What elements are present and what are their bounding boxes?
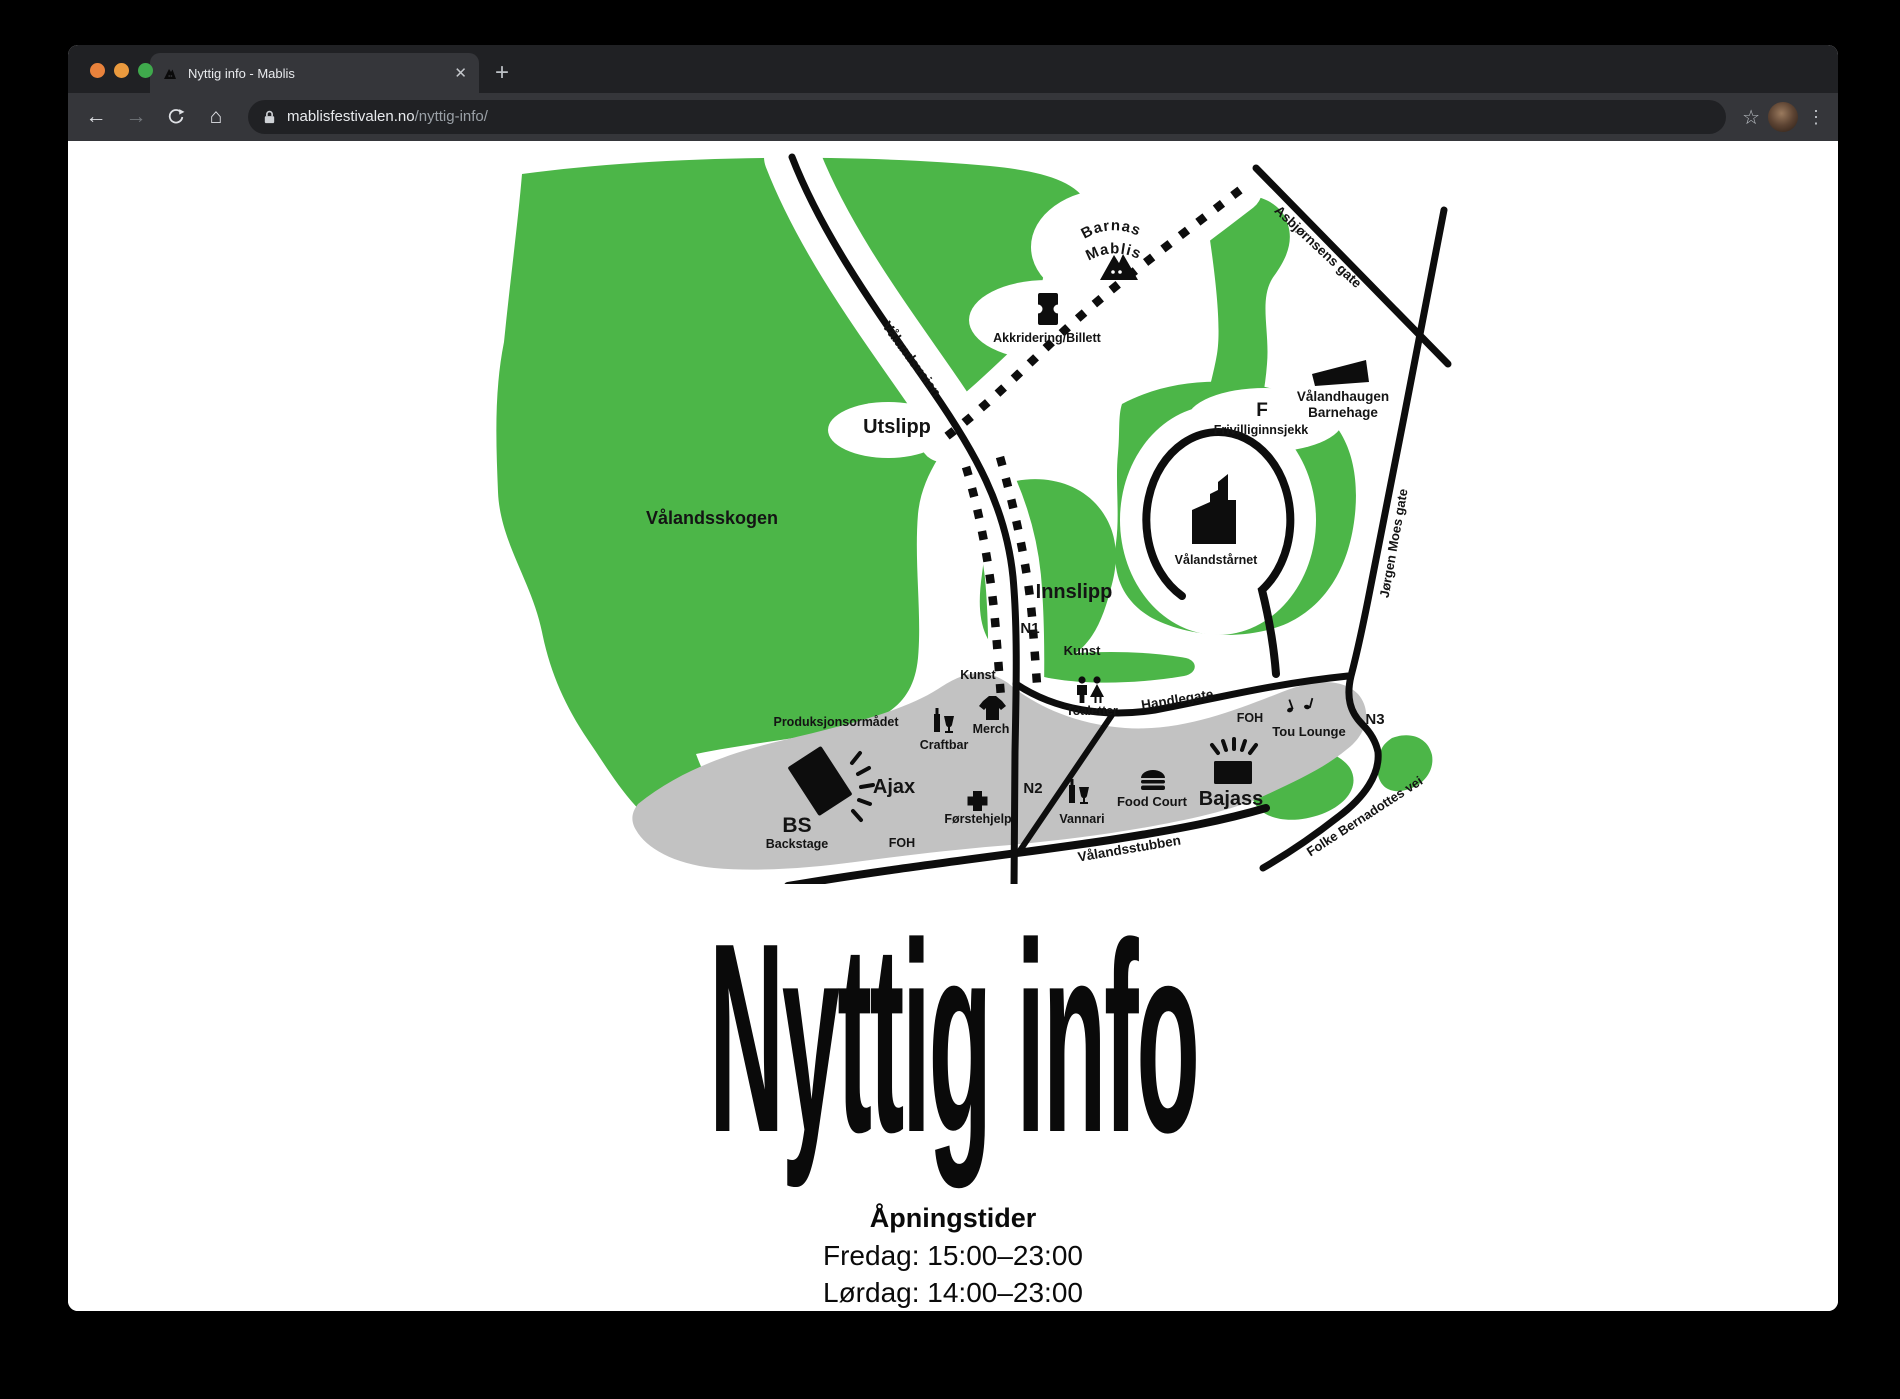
festival-map: Vålandsskogen Vålandsveien Utslipp Asbjø… (470, 152, 1460, 889)
label-n2: N2 (1023, 780, 1042, 797)
label-toaletter: Toaletter (1066, 704, 1118, 718)
label-kunst2: Kunst (960, 668, 996, 682)
label-forest: Vålandsskogen (646, 508, 778, 528)
new-tab-button[interactable]: + (495, 61, 509, 85)
bookmark-star-button[interactable]: ☆ (1742, 105, 1760, 130)
label-akkreditering: Akkridering/Billett (993, 331, 1101, 345)
label-backstage: Backstage (766, 837, 829, 851)
label-barnehage-line1: Vålandhaugen (1297, 389, 1389, 404)
barnehage-building-icon (1312, 360, 1369, 386)
label-frivillig: Frivilliginnsjekk (1214, 423, 1309, 437)
fullscreen-window-button[interactable] (138, 63, 153, 78)
url-path: /nyttig-info/ (415, 108, 488, 125)
url-text: mablisfestivalen.no/nyttig-info/ (287, 108, 488, 126)
label-craftbar: Craftbar (920, 738, 969, 752)
tab-close-icon[interactable]: ✕ (454, 64, 467, 82)
opening-hours-saturday: Lørdag: 14:00–23:00 (823, 1275, 1083, 1311)
browser-menu-button[interactable]: ⋮ (1806, 107, 1826, 128)
minimize-window-button[interactable] (114, 63, 129, 78)
label-bs: BS (782, 814, 811, 837)
home-button[interactable]: ⌂ (200, 101, 232, 133)
mablis-favicon-icon (162, 66, 178, 80)
page-title: Nyttig info (68, 923, 1838, 1167)
browser-tab[interactable]: Nyttig info - Mablis ✕ (150, 53, 479, 93)
url-domain: mablisfestivalen.no (287, 108, 415, 125)
label-n3: N3 (1365, 711, 1384, 728)
forward-button[interactable]: → (120, 101, 152, 133)
label-merch: Merch (973, 722, 1010, 736)
label-barnehage-line2: Barnehage (1308, 405, 1378, 420)
close-window-button[interactable] (90, 63, 105, 78)
burger-icon (1141, 770, 1165, 790)
label-kunst1: Kunst (1064, 643, 1102, 658)
label-innslipp: Innslipp (1036, 581, 1113, 603)
label-foodcourt: Food Court (1117, 794, 1188, 809)
profile-avatar[interactable] (1768, 102, 1798, 132)
label-bajass: Bajass (1199, 788, 1264, 810)
label-taarnet: Vålandstårnet (1175, 553, 1259, 567)
browser-window: Nyttig info - Mablis ✕ + ← → ⌂ mablisfes… (68, 45, 1838, 1311)
back-button[interactable]: ← (80, 101, 112, 133)
label-utslipp: Utslipp (863, 416, 931, 438)
page-content: Vålandsskogen Vålandsveien Utslipp Asbjø… (68, 141, 1838, 1311)
reload-button[interactable] (160, 101, 192, 133)
opening-hours-friday: Fredag: 15:00–23:00 (823, 1238, 1083, 1274)
browser-toolbar: ← → ⌂ mablisfestivalen.no/nyttig-info/ ☆… (68, 93, 1838, 141)
label-tou: Tou Lounge (1272, 724, 1345, 739)
label-n1: N1 (1020, 620, 1039, 637)
label-forstehjelp: Førstehjelp (944, 812, 1012, 826)
lock-icon (262, 109, 277, 125)
label-foh-right: FOH (1237, 711, 1263, 725)
tab-title: Nyttig info - Mablis (188, 66, 444, 81)
opening-hours: Åpningstider Fredag: 15:00–23:00 Lørdag:… (823, 1203, 1083, 1311)
reload-icon (167, 108, 185, 126)
label-foh-left: FOH (889, 836, 915, 850)
label-f: F (1256, 400, 1268, 421)
address-bar[interactable]: mablisfestivalen.no/nyttig-info/ (248, 100, 1726, 134)
tab-strip: Nyttig info - Mablis ✕ + (68, 45, 1838, 93)
label-produksjon: Produksjonsormådet (773, 715, 899, 729)
label-vannari: Vannari (1059, 812, 1104, 826)
opening-hours-title: Åpningstider (823, 1203, 1083, 1234)
label-ajax: Ajax (873, 776, 915, 798)
traffic-lights (90, 63, 153, 78)
map-green-band (1025, 652, 1195, 683)
